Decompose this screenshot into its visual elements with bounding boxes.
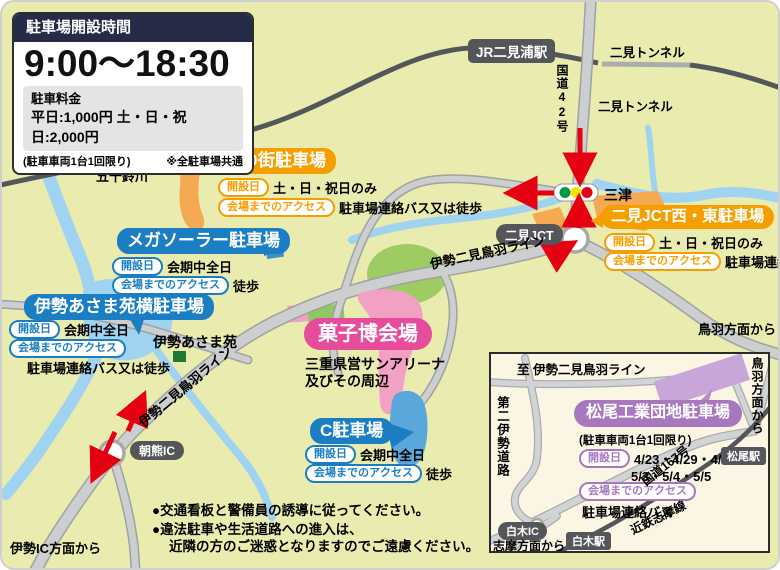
fee-label: 駐車料金 [31, 88, 235, 107]
access-value: 駐車場連絡バス又は徒歩 [339, 198, 482, 217]
inset-from-toba-label: 鳥羽方面から [749, 357, 766, 452]
from-toba-label: 鳥羽方面から [698, 319, 776, 338]
matsuo-inset-map: 至 伊勢二見鳥羽ライン 鳥羽方面から 第二伊勢道路 松尾工業団地駐車場 (駐車車… [489, 352, 770, 553]
from-shima-label: 志摩方面から [493, 537, 565, 553]
fee-box: 駐車料金 平日:1,000円 土・日・祝日:2,000円 [23, 86, 243, 151]
asama-ic-label: 朝熊IC [130, 441, 184, 460]
traffic-light-icon [554, 184, 598, 201]
parking-hours-box: 駐車場開設時間 9:00〜18:30 駐車料金 平日:1,000円 土・日・祝日… [12, 12, 254, 175]
asamaen-parking-label: 伊勢あさま苑横駐車場 [24, 294, 214, 320]
shiraki-station-label: 白木駅 [566, 532, 611, 550]
open-days-pill: 開設日 [9, 320, 60, 339]
access-value: 徒歩 [233, 276, 259, 295]
open-days-value: 会期中全日 [167, 257, 232, 276]
asamaen-building [173, 351, 186, 362]
open-days-pill: 開設日 [604, 233, 655, 252]
daini-ise-road-label: 第二伊勢道路 [493, 396, 512, 491]
open-days-value: 会期中全日 [64, 320, 129, 339]
access-pill: 会場までのアクセス [604, 252, 721, 271]
open-days-value: 土・日・祝日のみ [659, 233, 763, 252]
futami-tunnel-rail-label: 二見トンネル [610, 42, 685, 61]
futami-tunnel-segment [602, 64, 690, 65]
open-days-pill: 開設日 [579, 449, 630, 468]
c-parking-label: C駐車場 [310, 418, 393, 444]
megasolar-parking-label: メガソーラー駐車場 [117, 228, 290, 254]
open-days-value: 土・日・祝日のみ [273, 178, 377, 197]
futami-jct-circle [562, 226, 588, 252]
access-value: 駐車場連絡バス [725, 252, 780, 271]
to-toba-line-label: 至 伊勢二見鳥羽ライン [517, 359, 645, 378]
parking-map: 駐車場開設時間 9:00〜18:30 駐車料金 平日:1,000円 土・日・祝日… [0, 0, 780, 570]
access-pill: 会場までのアクセス [112, 276, 229, 295]
fee-text: 平日:1,000円 土・日・祝日:2,000円 [31, 107, 235, 147]
notice-line-1: ●交通看板と警備員の誘導に従ってください。 [152, 499, 429, 519]
open-days-pill: 開設日 [305, 445, 356, 464]
access-pill: 会場までのアクセス [218, 198, 335, 217]
matsuo-station-label: 松尾駅 [721, 447, 766, 465]
access-value: 徒歩 [426, 464, 452, 483]
venue-desc-line2: 及びその周辺 [305, 371, 389, 391]
open-days-pill: 開設日 [112, 257, 163, 276]
opening-hours: 9:00〜18:30 [14, 42, 252, 86]
hours-title: 駐車場開設時間 [14, 14, 252, 42]
access-pill: 会場までのアクセス [305, 464, 422, 483]
venue-label: 菓子博会場 [304, 318, 432, 350]
access-value: 駐車場連絡バス又は徒歩 [27, 358, 170, 377]
notice-line-3: 近隣の方のご迷惑となりますのでご遠慮ください。 [169, 535, 479, 555]
route-42-label: 国道42号 [554, 64, 571, 134]
from-ise-ic-label: 伊勢IC方面から [10, 538, 101, 557]
matsuo-parking-label: 松尾工業団地駐車場 [574, 400, 742, 427]
mitsu-intersection-label: 三津 [604, 185, 632, 205]
fee-notes: (駐車車両1台1回限り) ※全駐車場共通 [14, 151, 252, 173]
fee-note-left: (駐車車両1台1回限り) [23, 153, 131, 169]
jr-futaminoura-station-label: JR二見浦駅 [468, 39, 555, 63]
ise-asamaen-label: 伊勢あさま苑 [153, 332, 237, 352]
open-days-value: 会期中全日 [360, 445, 425, 464]
fee-note-right: ※全駐車場共通 [166, 153, 243, 169]
jct-parking-label: 二見JCT西・東駐車場 [601, 205, 774, 229]
open-days-pill: 開設日 [218, 178, 269, 197]
access-pill: 会場までのアクセス [9, 339, 126, 358]
futami-tunnel-road-label: 二見トンネル [598, 96, 673, 115]
